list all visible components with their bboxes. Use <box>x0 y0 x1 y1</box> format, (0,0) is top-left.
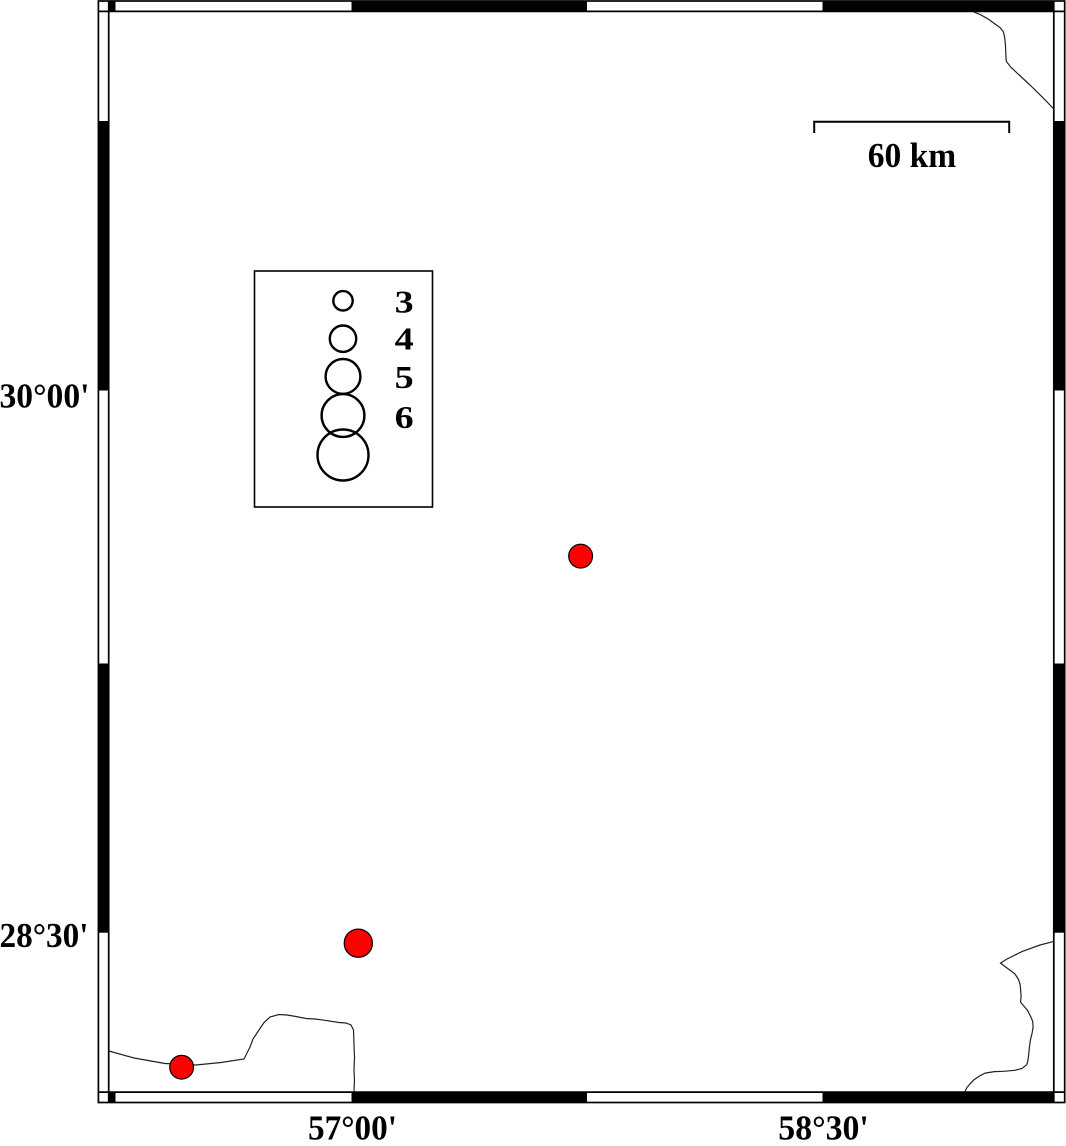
svg-text:57°00': 57°00' <box>308 1108 397 1141</box>
svg-text:28°30': 28°30' <box>0 916 89 955</box>
svg-text:5: 5 <box>395 359 414 395</box>
svg-text:4: 4 <box>395 321 414 357</box>
svg-text:3: 3 <box>395 283 414 319</box>
svg-text:30°00': 30°00' <box>0 376 90 415</box>
svg-text:60 km: 60 km <box>868 136 957 175</box>
svg-text:6: 6 <box>395 399 414 435</box>
svg-text:58°30': 58°30' <box>778 1108 869 1141</box>
